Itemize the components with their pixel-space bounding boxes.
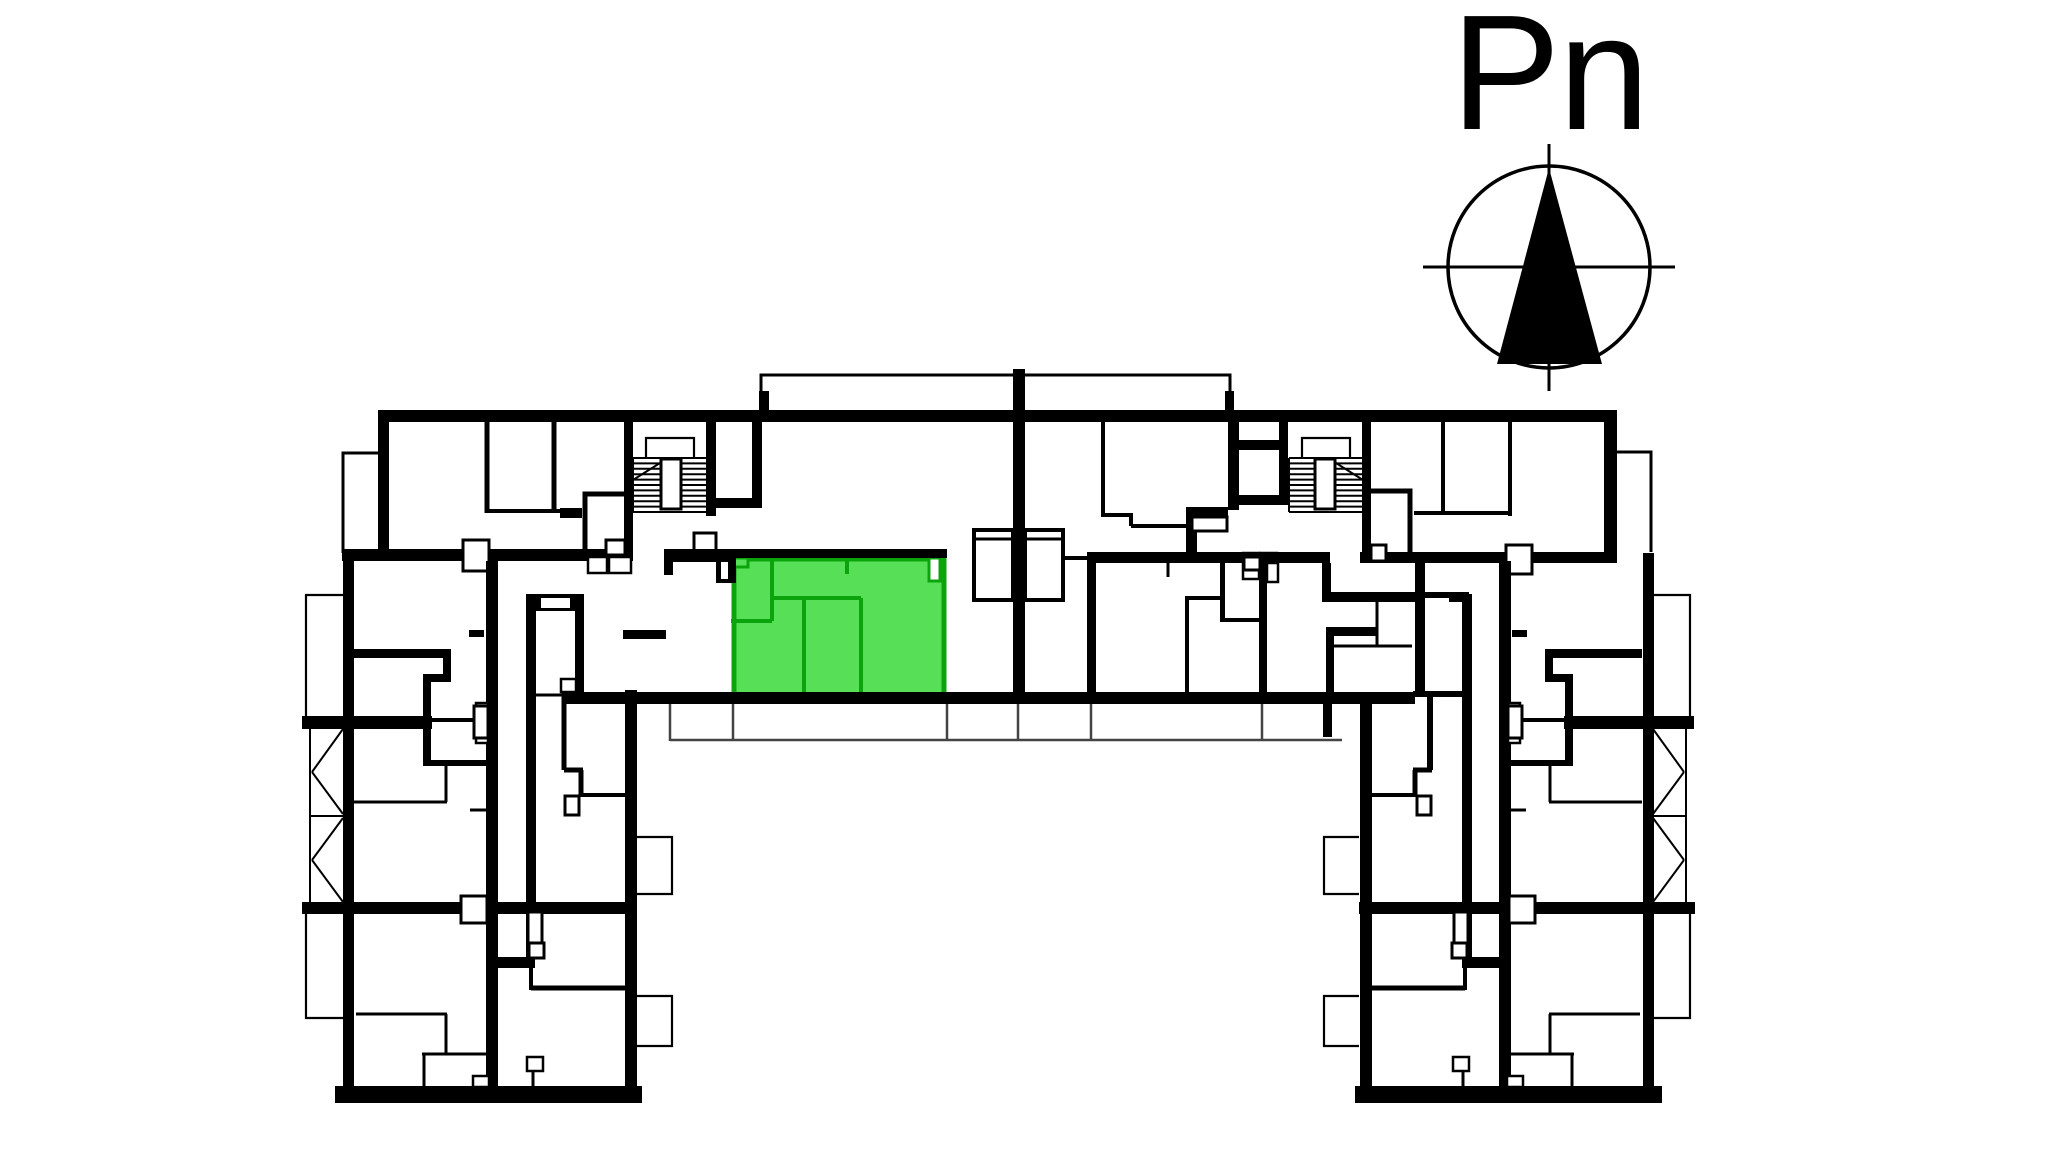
svg-text:Pn: Pn <box>1451 0 1648 164</box>
